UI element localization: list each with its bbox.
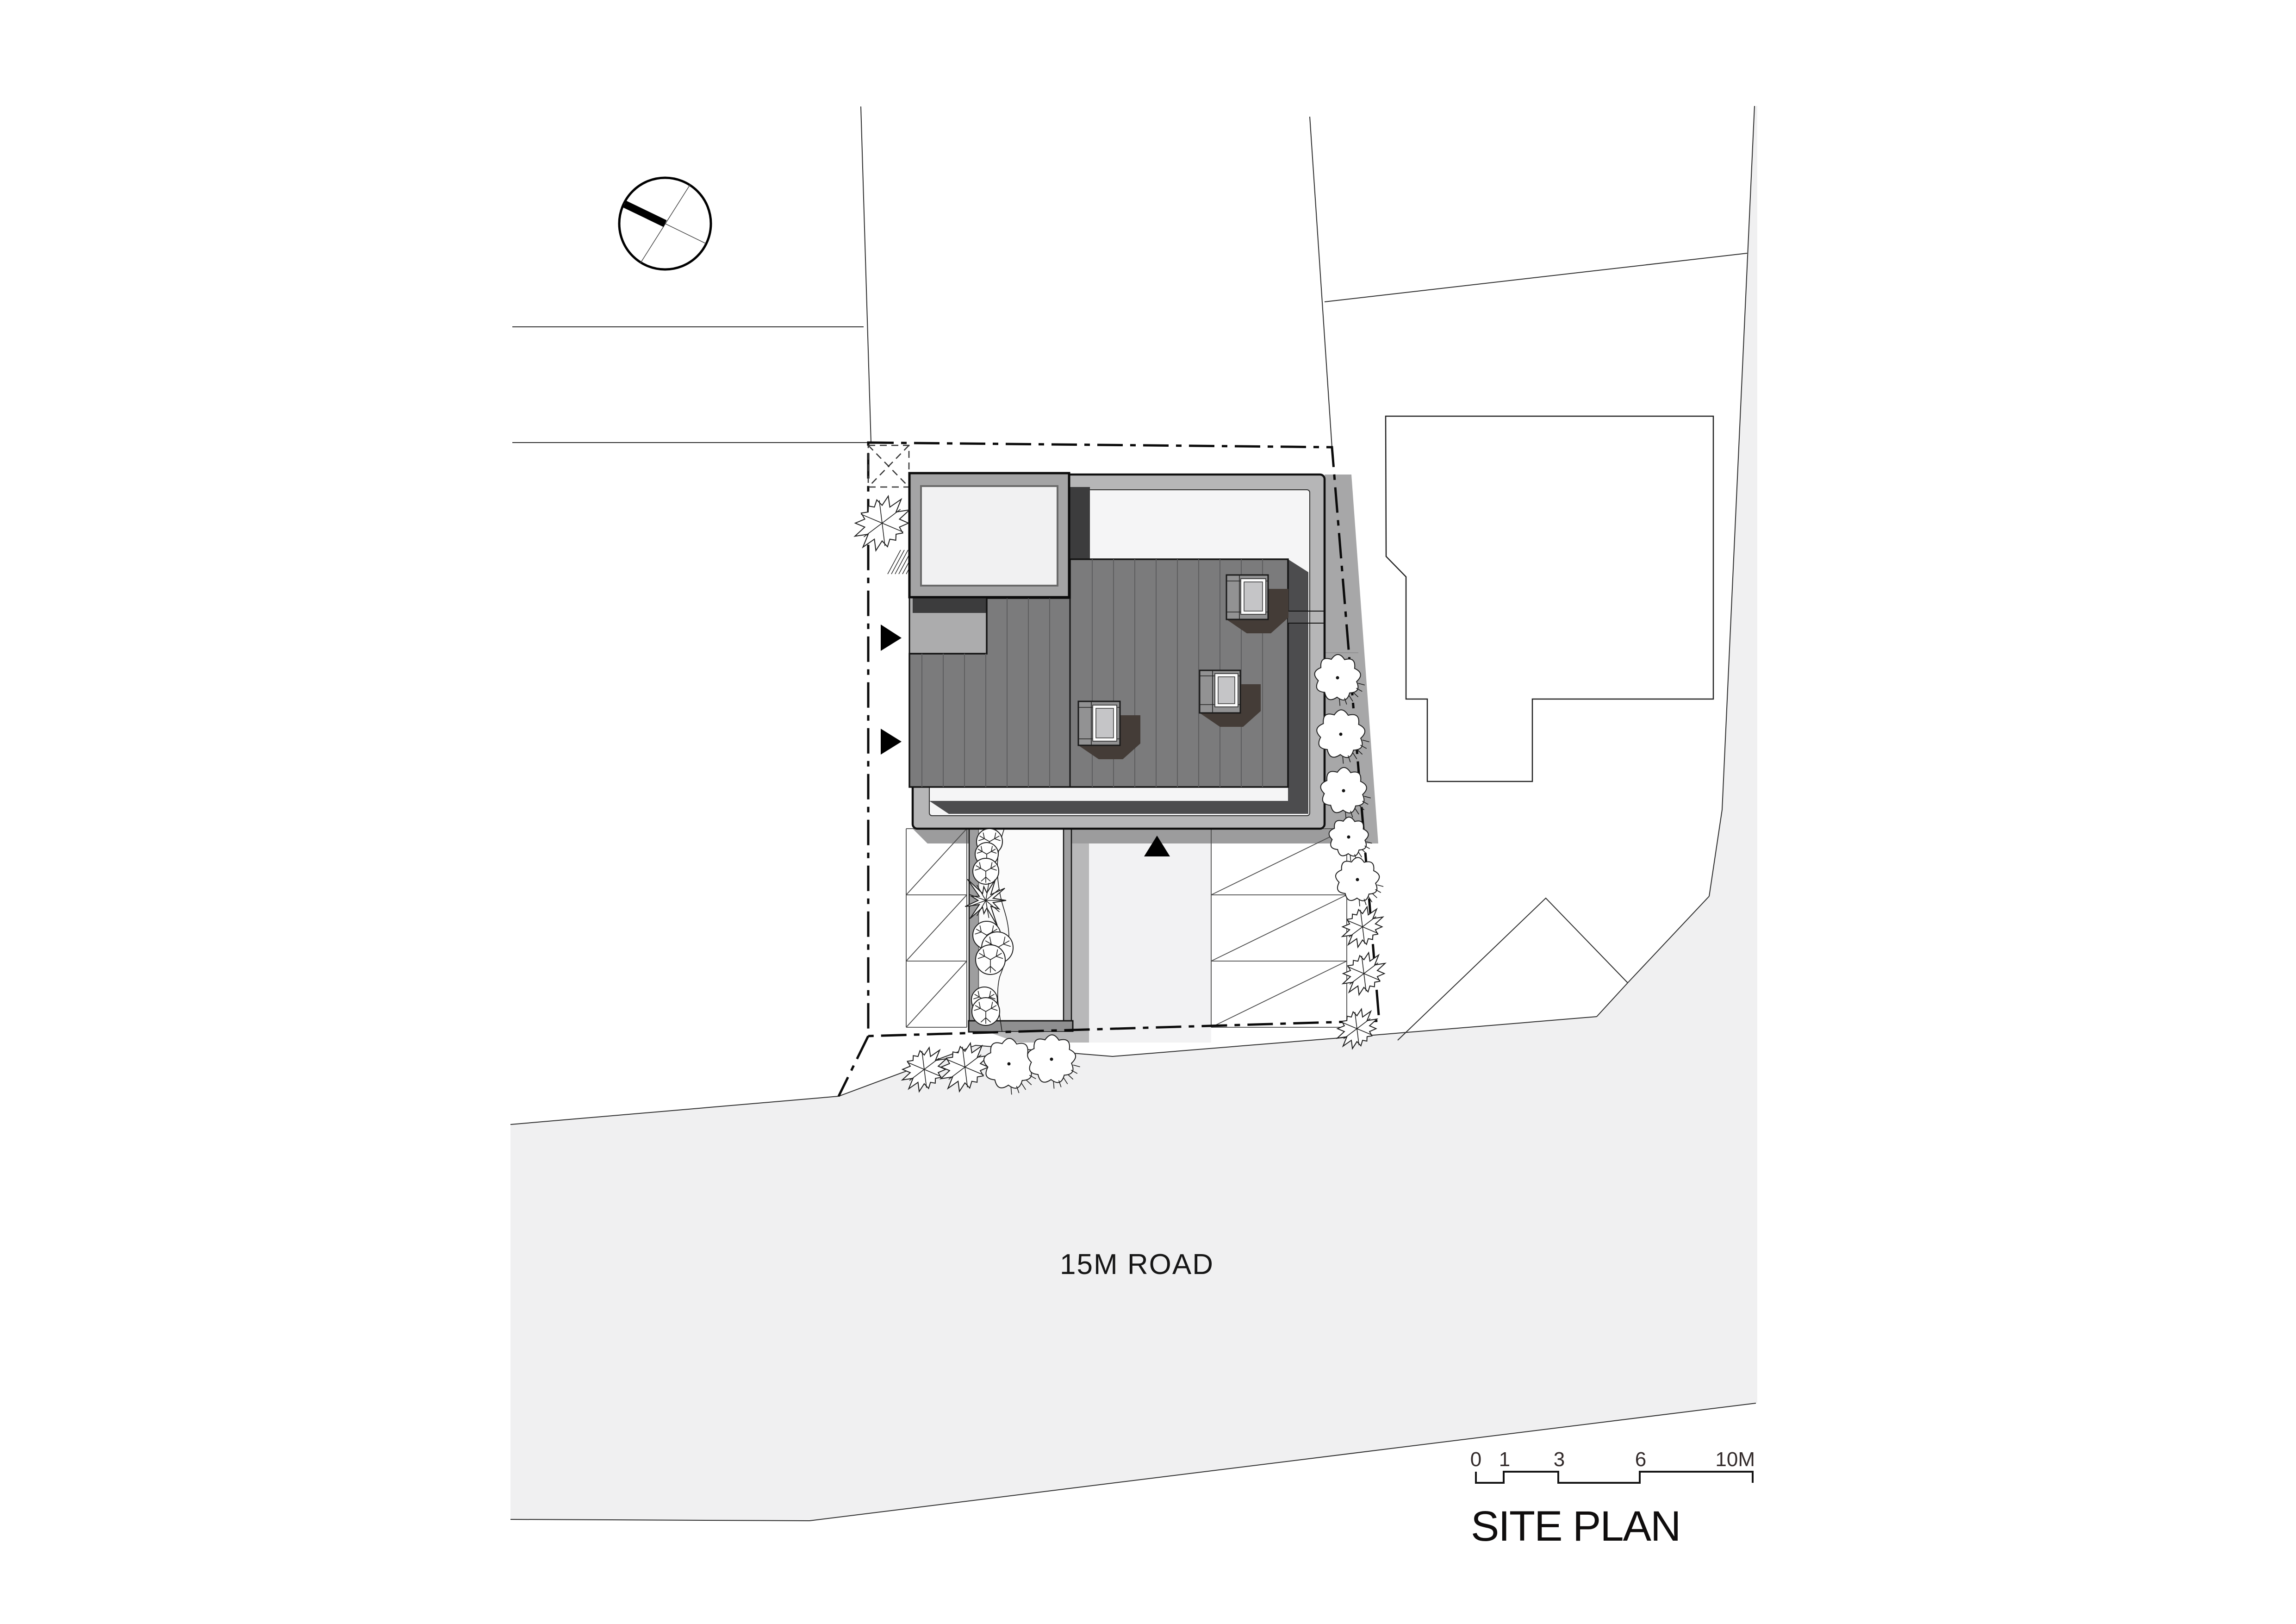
main-building	[909, 473, 1325, 829]
road-label: 15M ROAD	[1060, 1249, 1214, 1280]
plan-title: SITE PLAN	[1471, 1503, 1680, 1550]
walkway-wall-shadow	[1071, 843, 1089, 1043]
site-plan-canvas: 15M ROAD	[0, 0, 2296, 1624]
site-plan-page: 15M ROAD	[0, 0, 2296, 1624]
scale-bar-line	[1476, 1472, 1753, 1483]
right-division-line	[1325, 253, 1747, 302]
entrance-arrow-icon	[881, 729, 902, 755]
scale-label-10m: 10M	[1715, 1448, 1755, 1471]
scale-label-1: 1	[1499, 1448, 1510, 1471]
scale-label-3: 3	[1554, 1448, 1565, 1471]
scale-label-0: 0	[1470, 1448, 1481, 1471]
garage-court-inner	[921, 486, 1058, 586]
scale-bar: 0 1 3 6 10M	[1470, 1448, 1755, 1483]
entrance-arrow-icon	[881, 625, 902, 651]
left-parcel-line	[861, 106, 871, 443]
walkway-right-wall	[1064, 829, 1071, 1021]
corner-parcel-line	[1310, 117, 1332, 447]
neighbor-building	[1386, 416, 1713, 781]
north-arrow-icon	[619, 178, 711, 269]
scale-label-6: 6	[1635, 1448, 1646, 1471]
driveway	[1089, 843, 1211, 1043]
terrace-step	[1288, 611, 1308, 623]
